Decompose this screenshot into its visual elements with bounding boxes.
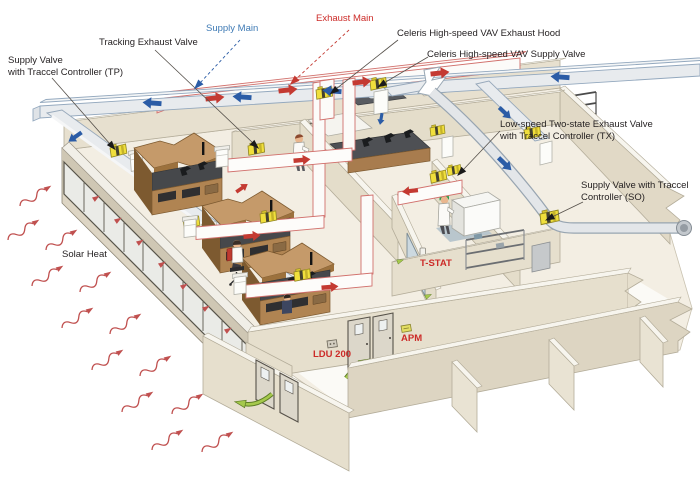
- label-supply-valve-so: Supply Valve with Traccel Controller (SO…: [581, 180, 689, 204]
- label-line: Supply Valve: [8, 55, 123, 67]
- label-supply-valve-tp: Supply Valve with Traccel Controller (TP…: [8, 55, 123, 79]
- label-line: Supply Valve with Traccel: [581, 180, 689, 192]
- label-celeris-supply-valve: Celeris High-speed VAV Supply Valve: [427, 49, 585, 61]
- label-line: Low-speed Two-state Exhaust Valve: [500, 119, 653, 131]
- label-ldu-200: LDU 200: [313, 349, 351, 361]
- label-low-speed-tx: Low-speed Two-state Exhaust Valve with T…: [500, 119, 653, 143]
- hvac-lab-diagram: Supply Valve with Traccel Controller (TP…: [0, 0, 700, 482]
- apm-device: [401, 324, 411, 332]
- corridor-door-2: [373, 313, 393, 362]
- label-tracking-exhaust-valve: Tracking Exhaust Valve: [99, 37, 198, 49]
- white-chest-bench: [452, 192, 500, 236]
- label-line: with Traccel Controller (TX): [500, 131, 653, 143]
- label-exhaust-main: Exhaust Main: [316, 13, 374, 25]
- label-t-stat: T-STAT: [420, 258, 452, 270]
- fume-bench-1: [134, 133, 226, 215]
- label-line: Controller (SO): [581, 192, 689, 204]
- ldu-200-device: [327, 340, 337, 348]
- label-solar-heat: Solar Heat: [62, 249, 107, 261]
- metal-cart: [532, 242, 550, 272]
- label-supply-main: Supply Main: [206, 23, 258, 35]
- label-line: with Traccel Controller (TP): [8, 67, 123, 79]
- label-apm: APM: [401, 333, 422, 345]
- label-celeris-exhaust-hood: Celeris High-speed VAV Exhaust Hood: [397, 28, 560, 40]
